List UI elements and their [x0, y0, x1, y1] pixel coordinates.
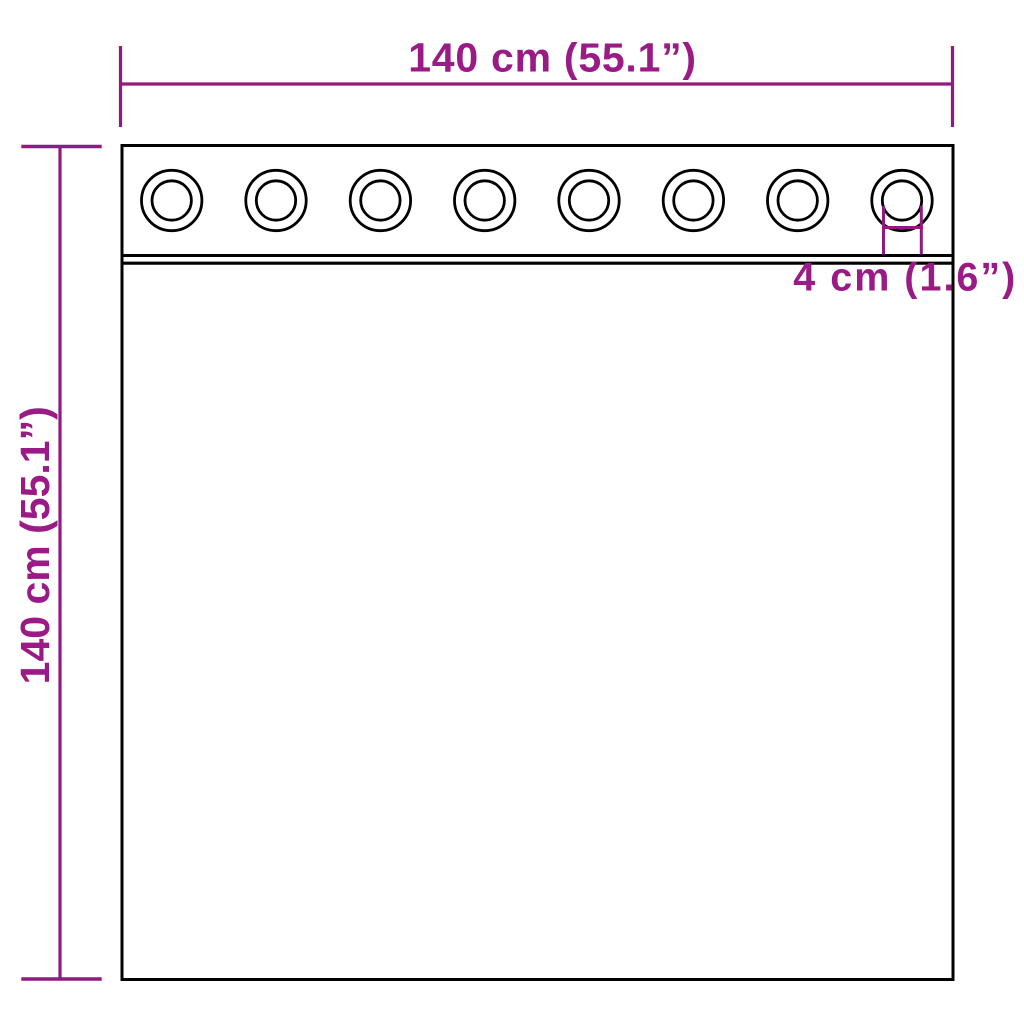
- svg-text:140 cm (55.1”): 140 cm (55.1”): [408, 35, 697, 81]
- svg-text:140 cm (55.1”): 140 cm (55.1”): [12, 406, 58, 684]
- svg-text:4 cm (1.6”): 4 cm (1.6”): [793, 256, 1017, 300]
